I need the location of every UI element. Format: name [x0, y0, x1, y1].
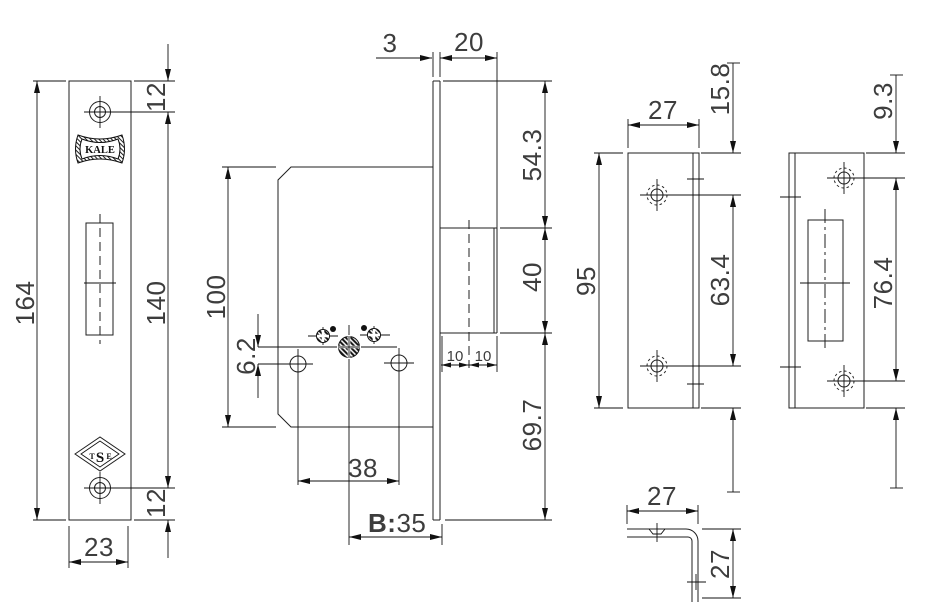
dim-label-95: 95: [571, 266, 601, 296]
strike-plate-slotted-view: 9.3 76.4: [780, 75, 905, 488]
dim-strike-plain-chain: 15.8 63.4: [701, 63, 741, 492]
dim-label-27-angle-side: 27: [705, 549, 735, 579]
dim-label-12-bottom: 12: [141, 488, 171, 518]
deadbolt: [440, 220, 497, 368]
brand-logo-text: KALE: [85, 145, 115, 156]
dim-label-69-7: 69.7: [517, 399, 547, 452]
dim-label-40: 40: [517, 262, 547, 292]
dim-label-164: 164: [10, 281, 40, 326]
dim-label-9-3-top: 9.3: [868, 82, 898, 120]
tse-letter-t: T: [89, 452, 95, 461]
dim-label-76-4: 76.4: [868, 257, 898, 310]
dim-faceplate-width: 23: [69, 526, 128, 568]
dim-label-38: 38: [348, 453, 378, 483]
dim-label-3: 3: [383, 28, 398, 58]
dim-label-15-8-top: 15.8: [705, 63, 735, 116]
dim-label-backset: B:35: [368, 508, 426, 538]
dim-label-6-2: 6.2: [231, 337, 261, 375]
strike-plate-plain-view: 27 95 15.8 63.4: [571, 63, 741, 492]
dim-label-10-left: 10: [447, 348, 464, 365]
lock-body-side-view: 100 6.2 38 B:35 3: [201, 27, 552, 545]
dim-label-10-right: 10: [475, 348, 492, 365]
dim-label-20: 20: [454, 27, 484, 57]
technical-drawing: KALE T S E 164: [0, 0, 939, 614]
tse-letter-e: E: [106, 452, 111, 461]
tse-logo: T S E: [75, 437, 125, 471]
faceplate-slot: [84, 214, 116, 344]
dim-body-height: 100: [201, 167, 276, 427]
dim-label-140: 140: [141, 281, 171, 326]
dim-faceplate-holes: 12 140 12: [134, 44, 175, 558]
dim-strike-plain-height: 95: [571, 153, 623, 408]
dim-label-63-4: 63.4: [705, 254, 735, 307]
fixing-post-right: [360, 325, 390, 344]
strike-angle-view: 27 27: [627, 481, 741, 602]
dim-angle-width: 27: [627, 481, 698, 524]
strike-plain-hole-top: [640, 179, 741, 211]
faceplate-front-view: KALE T S E 164: [10, 44, 175, 568]
angle-countersink: [649, 523, 665, 542]
dim-label-54-3: 54.3: [517, 129, 547, 182]
angle-leg-mark: [687, 574, 706, 590]
body-screw-hole-left: [258, 349, 313, 485]
dim-bolt-throw: 20: [440, 27, 497, 61]
dim-backset: B:35: [349, 508, 442, 545]
dim-strike-plain-width: 27: [628, 95, 699, 148]
strike-slotted-slot: [800, 209, 850, 352]
dim-cylinder-offset: 6.2: [231, 314, 261, 398]
dim-faceplate-thickness: 3: [376, 28, 432, 61]
dim-label-23: 23: [84, 532, 114, 562]
dim-screw-spacing: 38: [298, 453, 399, 484]
dim-label-100: 100: [201, 275, 231, 320]
lock-drawing-canvas: KALE T S E 164: [0, 0, 939, 614]
dim-angle-height: 27: [702, 529, 741, 598]
strike-plain-hole-bottom: [640, 350, 741, 382]
dim-label-27-plain: 27: [648, 95, 678, 125]
dim-faceplate-height: 164: [10, 81, 66, 520]
fixing-post-left: [308, 326, 338, 345]
dim-strike-slotted-chain: 9.3 76.4: [866, 75, 905, 488]
body-screw-hole-right: [384, 348, 414, 485]
tse-letter-s: S: [96, 450, 104, 466]
brand-logo: KALE: [76, 135, 125, 163]
dim-label-27-angle-top: 27: [647, 481, 677, 511]
dim-label-12-top: 12: [141, 82, 171, 112]
